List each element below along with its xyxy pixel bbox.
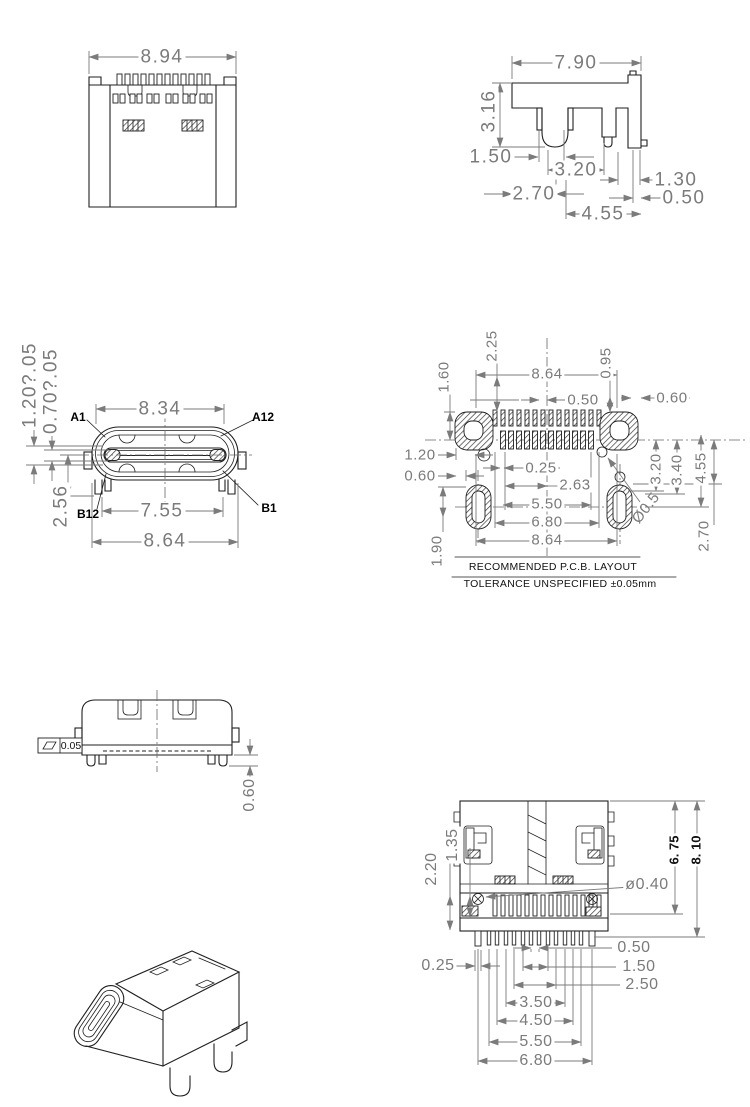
dim-frontview-8-34: 8.34 (137, 400, 184, 419)
dim-pcb-0-60-right: 0.60 (654, 391, 689, 406)
dim-bottomview-4-50: 4.50 (517, 1013, 554, 1029)
dim-pcb-0-50: 0.50 (565, 393, 600, 408)
dim-pcb-1-20: 1.20 (402, 448, 437, 463)
dim-bottomview-6-75: 6. 75 (668, 834, 681, 867)
dim-bottomview-0-50: 0.50 (615, 940, 652, 956)
pin-label-b1: B1 (261, 502, 276, 514)
dim-pcb-3-20: 3.20 (649, 451, 664, 486)
dim-pcb-8-64-bottom: 8.64 (529, 533, 564, 548)
dim-pcb-2-25: 2.25 (485, 328, 500, 363)
top-view (89, 51, 236, 207)
dim-pcb-0-25: 0.25 (523, 461, 558, 476)
pin-label-b12: B12 (77, 508, 99, 520)
engineering-drawing-canvas: 8.94 7.90 3.16 1.50 3.20 1.30 2.70 0.50 … (0, 0, 750, 1107)
dim-frontview-0-70-tol: 0.70?.05 (42, 346, 61, 436)
pin-label-a1: A1 (70, 411, 85, 423)
dim-bottomview-0-25: 0.25 (419, 958, 456, 974)
flatness-tolerance-value: 0.05 (61, 741, 81, 752)
dim-bottomview-3-50: 3.50 (517, 995, 554, 1011)
dim-bottomview-hole-diameter: ø0.40 (623, 877, 670, 893)
dim-pcb-1-60: 1.60 (437, 359, 452, 394)
rear-view (38, 690, 258, 781)
dim-bottomview-6-80: 6.80 (517, 1053, 554, 1069)
dim-pcb-2-63: 2.63 (557, 478, 592, 493)
pcb-tolerance-note: TOLERANCE UNSPECIFIED ±0.05mm (462, 579, 659, 590)
dim-topview-width: 8.94 (139, 48, 186, 67)
dim-pcb-2-70: 2.70 (697, 518, 712, 553)
dim-rearview-0-60: 0.60 (242, 776, 258, 813)
dim-bottomview-5-50: 5.50 (517, 1034, 554, 1050)
dim-sideview-height: 3.16 (480, 88, 499, 135)
dim-pcb-6-80: 6.80 (529, 515, 564, 530)
dim-pcb-3-40: 3.40 (670, 452, 685, 487)
dim-pcb-4-55: 4.55 (694, 450, 709, 485)
dim-pcb-5-50: 5.50 (529, 497, 564, 512)
dim-sideview-1-50: 1.50 (468, 148, 515, 167)
dim-frontview-7-55: 7.55 (139, 502, 186, 521)
dim-bottomview-1-50: 1.50 (620, 959, 657, 975)
dim-sideview-2-70: 2.70 (511, 185, 558, 204)
dim-bottomview-8-10: 8. 10 (690, 834, 703, 867)
dim-pcb-1-90: 1.90 (430, 533, 445, 568)
dim-pcb-0-95: 0.95 (599, 345, 614, 380)
dim-sideview-width: 7.90 (553, 54, 600, 73)
dim-sideview-4-55: 4.55 (580, 205, 627, 224)
pin-label-a12: A12 (252, 411, 274, 423)
dim-bottomview-2-20: 2.20 (424, 850, 440, 887)
dim-bottomview-2-50: 2.50 (623, 977, 660, 993)
dim-pcb-8-64-top: 8.64 (529, 367, 564, 382)
dim-bottomview-1-35: 1.35 (445, 826, 461, 863)
dim-sideview-0-50: 0.50 (661, 189, 708, 208)
dim-pcb-0-60-left: 0.60 (402, 469, 437, 484)
dim-frontview-2-56: 2.56 (52, 483, 71, 530)
isometric-view (69, 951, 247, 1096)
dim-frontview-8-64: 8.64 (142, 532, 189, 551)
dim-sideview-3-20: 3.20 (553, 161, 600, 180)
dim-frontview-1-20-tol: 1.20?.05 (21, 340, 40, 430)
pcb-layout-title: RECOMMENDED P.C.B. LAYOUT (467, 562, 639, 573)
